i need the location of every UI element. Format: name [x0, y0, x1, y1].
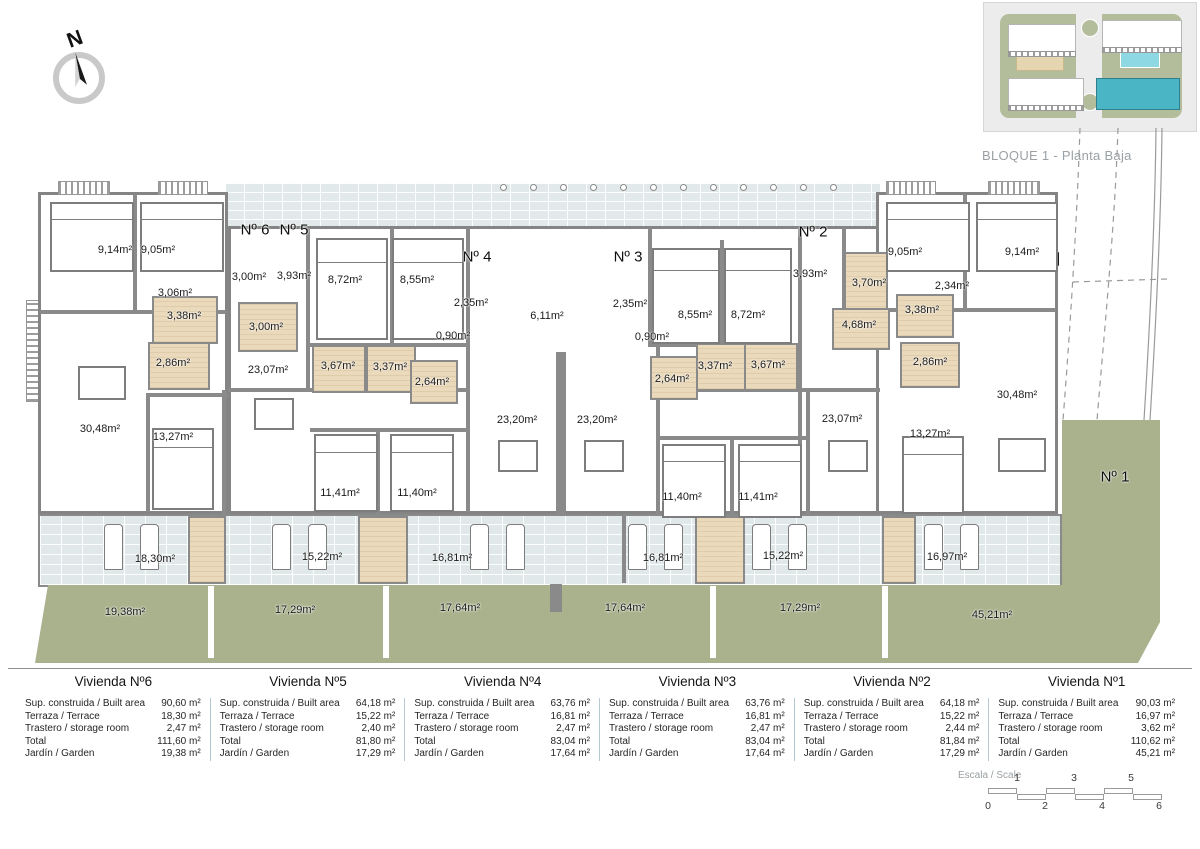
- wall-segment: [306, 228, 310, 390]
- fence-post-icon: [500, 184, 507, 191]
- area-row-label: Terraza / Terrace: [25, 711, 100, 724]
- area-row-value: 110,62 m²: [1131, 736, 1175, 749]
- area-row: Sup. construida / Built area90,03 m²: [998, 698, 1175, 711]
- scale-tick-top: 5: [1128, 772, 1134, 784]
- room-area-label: 17,29m²: [780, 602, 820, 614]
- road-lines: [1055, 128, 1167, 420]
- dining-table-icon: [498, 440, 538, 472]
- vivienda-column: Vivienda Nº6Sup. construida / Built area…: [16, 674, 211, 761]
- room-area-label: 3,00m²: [232, 271, 266, 283]
- lounger-icon: [788, 524, 807, 570]
- wet-room: [882, 516, 916, 584]
- planter-icon: [58, 181, 110, 195]
- dining-table-icon: [998, 438, 1046, 472]
- area-row: Total110,62 m²: [998, 736, 1175, 749]
- sheet-divider-line: [8, 668, 1192, 669]
- area-row: Trastero / storage room3,62 m²: [998, 723, 1175, 736]
- vivienda-column: Vivienda Nº2Sup. construida / Built area…: [795, 674, 990, 761]
- scale-tick-bottom: 4: [1099, 800, 1105, 812]
- area-row: Sup. construida / Built area63,76 m²: [414, 698, 590, 711]
- inset-parking-strip-3: [1102, 47, 1182, 53]
- fence-post-icon: [800, 184, 807, 191]
- area-row: Trastero / storage room2,47 m²: [414, 723, 590, 736]
- room-area-label: 17,64m²: [605, 602, 645, 614]
- room-area-label: 16,81m²: [432, 552, 472, 564]
- room-area-label: 3,37m²: [373, 361, 407, 373]
- vivienda-column: Vivienda Nº4Sup. construida / Built area…: [405, 674, 600, 761]
- room-area-label: 0,90m²: [635, 331, 669, 343]
- room-area-label: 45,21m²: [972, 609, 1012, 621]
- area-row: Jardín / Garden17,64 m²: [414, 748, 590, 761]
- wall-segment: [622, 514, 626, 583]
- area-row-value: 63,76 m²: [745, 698, 784, 711]
- area-row-label: Total: [804, 736, 825, 749]
- area-row-label: Sup. construida / Built area: [414, 698, 534, 711]
- area-row-value: 81,80 m²: [356, 736, 395, 749]
- garden-divider: [383, 586, 389, 658]
- fence-post-icon: [770, 184, 777, 191]
- area-row-label: Trastero / storage room: [609, 723, 713, 736]
- scale-bar-segment: [1046, 788, 1075, 794]
- area-row-value: 2,47 m²: [167, 723, 201, 736]
- garden-divider: [882, 586, 888, 658]
- room-area-label: 30,48m²: [80, 423, 120, 435]
- room-area-label: 13,27m²: [910, 428, 950, 440]
- bed-icon: [314, 434, 378, 512]
- unit-number-label: Nº 2: [799, 224, 828, 241]
- compass-icon: N: [34, 24, 126, 116]
- area-row: Jardín / Garden17,29 m²: [220, 748, 396, 761]
- area-row-value: 17,29 m²: [356, 748, 395, 761]
- area-row-value: 90,60 m²: [161, 698, 200, 711]
- room-area-label: 9,05m²: [888, 246, 922, 258]
- garden-divider: [710, 586, 716, 658]
- room-area-label: 2,86m²: [913, 356, 947, 368]
- fence-post-icon: [680, 184, 687, 191]
- room-area-label: 3,38m²: [167, 310, 201, 322]
- wall-segment: [656, 436, 806, 440]
- vivienda-column-title: Vivienda Nº5: [211, 674, 406, 689]
- lounger-icon: [104, 524, 123, 570]
- room-area-label: 18,30m²: [135, 553, 175, 565]
- area-row-value: 64,18 m²: [356, 698, 395, 711]
- room-area-label: 3,67m²: [751, 359, 785, 371]
- area-row-label: Terraza / Terrace: [220, 711, 295, 724]
- room-area-label: 3,06m²: [158, 287, 192, 299]
- room-area-label: 3,37m²: [698, 360, 732, 372]
- room-area-label: 4,68m²: [842, 319, 876, 331]
- area-row-value: 15,22 m²: [940, 711, 979, 724]
- area-row-value: 111,60 m²: [157, 736, 201, 749]
- dining-table-icon: [254, 398, 294, 430]
- room-area-label: 13,27m²: [153, 431, 193, 443]
- bed-icon: [738, 444, 802, 518]
- room-area-label: 11,40m²: [397, 487, 437, 499]
- area-row: Sup. construida / Built area63,76 m²: [609, 698, 785, 711]
- bed-icon: [140, 202, 224, 272]
- lounger-icon: [506, 524, 525, 570]
- unit-number-label: Nº 6: [241, 222, 270, 239]
- planter-icon: [886, 181, 936, 195]
- room-area-label: 3,00m²: [249, 321, 283, 333]
- vivienda-column-rows: Sup. construida / Built area63,76 m²Terr…: [600, 698, 795, 761]
- room-area-label: 9,14m²: [1005, 246, 1039, 258]
- room-area-label: 11,40m²: [662, 491, 702, 503]
- area-row: Terraza / Terrace18,30 m²: [25, 711, 201, 724]
- area-row: Jardín / Garden45,21 m²: [998, 748, 1175, 761]
- area-row-value: 3,62 m²: [1141, 723, 1175, 736]
- dining-table-icon: [828, 440, 868, 472]
- wall-segment: [730, 438, 734, 514]
- room-area-label: 23,20m²: [577, 414, 617, 426]
- room-area-label: 9,05m²: [141, 244, 175, 256]
- area-row-value: 17,64 m²: [745, 748, 784, 761]
- area-row-label: Total: [998, 736, 1019, 749]
- lounger-icon: [752, 524, 771, 570]
- area-row-value: 83,04 m²: [745, 736, 784, 749]
- area-row-value: 16,81 m²: [551, 711, 590, 724]
- area-row: Total83,04 m²: [609, 736, 785, 749]
- room-area-label: 8,55m²: [400, 274, 434, 286]
- area-row-label: Jardín / Garden: [414, 748, 483, 761]
- room-area-label: 2,35m²: [454, 297, 488, 309]
- unit-number-label: Nº 1: [1101, 469, 1130, 486]
- room-area-label: 2,86m²: [156, 357, 190, 369]
- vivienda-column-title: Vivienda Nº3: [600, 674, 795, 689]
- room-area-label: 15,22m²: [763, 550, 803, 562]
- area-row-value: 2,44 m²: [945, 723, 979, 736]
- fence-post-icon: [830, 184, 837, 191]
- area-row: Total111,60 m²: [25, 736, 201, 749]
- fence-post-icon: [590, 184, 597, 191]
- area-row: Sup. construida / Built area90,60 m²: [25, 698, 201, 711]
- fence-post-icon: [710, 184, 717, 191]
- area-row: Terraza / Terrace16,81 m²: [609, 711, 785, 724]
- wet-room: [358, 516, 408, 584]
- area-row-label: Terraza / Terrace: [609, 711, 684, 724]
- floorplan-sheet: { "header": { "title": "BLOQUE 1 - Plant…: [0, 0, 1200, 849]
- room-area-label: 8,55m²: [678, 309, 712, 321]
- room-area-label: 3,93m²: [277, 270, 311, 282]
- room-area-label: 23,07m²: [248, 364, 288, 376]
- area-row-value: 90,03 m²: [1136, 698, 1175, 711]
- area-row-label: Jardín / Garden: [998, 748, 1067, 761]
- room-area-label: 9,14m²: [98, 244, 132, 256]
- room-area-label: 16,97m²: [927, 551, 967, 563]
- room-area-label: 19,38m²: [105, 606, 145, 618]
- bed-icon: [652, 248, 720, 344]
- area-row-label: Terraza / Terrace: [998, 711, 1073, 724]
- area-row-value: 64,18 m²: [940, 698, 979, 711]
- vivienda-column-title: Vivienda Nº2: [795, 674, 990, 689]
- area-row-value: 19,38 m²: [161, 748, 200, 761]
- wall-segment: [466, 228, 470, 512]
- area-row: Trastero / storage room2,47 m²: [25, 723, 201, 736]
- area-row-label: Sup. construida / Built area: [220, 698, 340, 711]
- area-row: Trastero / storage room2,44 m²: [804, 723, 980, 736]
- planter-icon: [988, 181, 1040, 195]
- fence-post-icon: [530, 184, 537, 191]
- lounger-icon: [924, 524, 943, 570]
- inset-amenity-building: [1016, 56, 1064, 71]
- area-row-value: 2,47 m²: [556, 723, 590, 736]
- scale-tick-bottom: 6: [1156, 800, 1162, 812]
- room-area-label: 11,41m²: [320, 487, 360, 499]
- area-row: Jardín / Garden17,29 m²: [804, 748, 980, 761]
- fence-post-icon: [740, 184, 747, 191]
- wet-room: [695, 516, 745, 584]
- area-row-label: Jardín / Garden: [220, 748, 289, 761]
- area-row-value: 63,76 m²: [551, 698, 590, 711]
- vivienda-column-title: Vivienda Nº1: [989, 674, 1184, 689]
- area-row: Total81,84 m²: [804, 736, 980, 749]
- bed-icon: [390, 434, 454, 512]
- bed-icon: [902, 436, 964, 514]
- area-row-label: Total: [414, 736, 435, 749]
- bed-icon: [976, 202, 1058, 272]
- garden-divider: [208, 586, 214, 658]
- wet-room: [896, 294, 954, 338]
- room-area-label: 3,93m²: [793, 268, 827, 280]
- scale-bar-segment: [988, 788, 1017, 794]
- area-row: Sup. construida / Built area64,18 m²: [804, 698, 980, 711]
- room-area-label: 2,34m²: [935, 280, 969, 292]
- area-row-value: 18,30 m²: [161, 711, 200, 724]
- unit-number-label: Nº 3: [614, 249, 643, 266]
- unit-number-label: Nº 5: [280, 222, 309, 239]
- room-area-label: 30,48m²: [997, 389, 1037, 401]
- areas-table: Vivienda Nº6Sup. construida / Built area…: [16, 674, 1184, 761]
- room-area-label: 3,38m²: [905, 304, 939, 316]
- area-row-value: 45,21 m²: [1136, 748, 1175, 761]
- room-area-label: 6,11m²: [530, 310, 563, 322]
- area-row-label: Jardín / Garden: [609, 748, 678, 761]
- fence-post-icon: [650, 184, 657, 191]
- inset-building-bloque1: [1096, 78, 1180, 110]
- area-row: Sup. construida / Built area64,18 m²: [220, 698, 396, 711]
- room-area-label: 17,29m²: [275, 604, 315, 616]
- planter-icon: [158, 181, 208, 195]
- area-row: Jardín / Garden19,38 m²: [25, 748, 201, 761]
- scale-tick-bottom: 0: [985, 800, 991, 812]
- area-row-label: Terraza / Terrace: [414, 711, 489, 724]
- bed-icon: [886, 202, 970, 272]
- room-area-label: 8,72m²: [328, 274, 362, 286]
- room-area-label: 3,70m²: [852, 277, 886, 289]
- lounger-icon: [308, 524, 327, 570]
- area-row-label: Sup. construida / Built area: [25, 698, 145, 711]
- area-row-value: 2,47 m²: [751, 723, 785, 736]
- vivienda-column-rows: Sup. construida / Built area90,60 m²Terr…: [16, 698, 211, 761]
- room-area-label: 15,22m²: [302, 551, 342, 563]
- vivienda-column: Vivienda Nº1Sup. construida / Built area…: [989, 674, 1184, 761]
- wall-segment: [806, 390, 810, 514]
- bed-icon: [392, 238, 464, 340]
- area-row-label: Total: [609, 736, 630, 749]
- area-row-label: Total: [220, 736, 241, 749]
- dining-table-icon: [78, 366, 126, 400]
- area-row: Total83,04 m²: [414, 736, 590, 749]
- vivienda-column-rows: Sup. construida / Built area64,18 m²Terr…: [795, 698, 990, 761]
- area-row-label: Trastero / storage room: [220, 723, 324, 736]
- vivienda-column: Vivienda Nº5Sup. construida / Built area…: [211, 674, 406, 761]
- room-area-label: 0,90m²: [436, 330, 470, 342]
- inset-building-sw: [1008, 78, 1084, 106]
- area-row-value: 83,04 m²: [551, 736, 590, 749]
- area-row: Terraza / Terrace15,22 m²: [220, 711, 396, 724]
- area-row-value: 17,29 m²: [940, 748, 979, 761]
- area-row-label: Sup. construida / Built area: [609, 698, 729, 711]
- area-row-label: Total: [25, 736, 46, 749]
- area-row-value: 81,84 m²: [940, 736, 979, 749]
- room-area-label: 2,64m²: [415, 376, 449, 388]
- room-area-label: 23,07m²: [822, 413, 862, 425]
- vivienda-column-title: Vivienda Nº4: [405, 674, 600, 689]
- area-row: Terraza / Terrace15,22 m²: [804, 711, 980, 724]
- wall-segment: [222, 390, 226, 514]
- area-row: Trastero / storage room2,40 m²: [220, 723, 396, 736]
- area-row-label: Trastero / storage room: [998, 723, 1102, 736]
- compass-n-letter: N: [64, 26, 86, 53]
- wet-room: [188, 516, 226, 584]
- dining-table-icon: [584, 440, 624, 472]
- inset-building-ne: [1102, 20, 1182, 48]
- fence-post-icon: [620, 184, 627, 191]
- area-row-label: Trastero / storage room: [25, 723, 129, 736]
- room-area-label: 2,35m²: [613, 298, 647, 310]
- area-row-value: 15,22 m²: [356, 711, 395, 724]
- room-area-label: 17,64m²: [440, 602, 480, 614]
- scale-bar-segment: [1104, 788, 1133, 794]
- wall-segment: [556, 352, 566, 514]
- room-area-label: 2,64m²: [655, 373, 689, 385]
- lounger-icon: [960, 524, 979, 570]
- area-row-label: Jardín / Garden: [25, 748, 94, 761]
- area-row-label: Sup. construida / Built area: [998, 698, 1118, 711]
- bed-icon: [724, 248, 792, 344]
- area-row-value: 16,97 m²: [1136, 711, 1175, 724]
- vivienda-column: Vivienda Nº3Sup. construida / Built area…: [600, 674, 795, 761]
- inset-parking-strip-2: [1008, 105, 1084, 111]
- lounger-icon: [272, 524, 291, 570]
- area-row: Jardín / Garden17,64 m²: [609, 748, 785, 761]
- area-row-label: Jardín / Garden: [804, 748, 873, 761]
- area-row-value: 2,40 m²: [361, 723, 395, 736]
- room-area-label: 23,20m²: [497, 414, 537, 426]
- scale-tick-top: 1: [1014, 772, 1020, 784]
- fence-post-icon: [560, 184, 567, 191]
- wall-segment: [146, 393, 228, 397]
- wall-segment: [146, 393, 150, 512]
- area-row: Total81,80 m²: [220, 736, 396, 749]
- area-row-value: 17,64 m²: [551, 748, 590, 761]
- scale-caption: Escala / Scale: [958, 770, 1021, 781]
- room-area-label: 16,81m²: [643, 552, 683, 564]
- inset-parking-strip-1: [1008, 51, 1076, 57]
- inset-roundabout-top: [1081, 19, 1099, 37]
- inset-pool: [1120, 52, 1160, 68]
- area-row: Terraza / Terrace16,81 m²: [414, 711, 590, 724]
- room-area-label: 11,41m²: [738, 491, 778, 503]
- area-row-label: Trastero / storage room: [414, 723, 518, 736]
- area-row-label: Trastero / storage room: [804, 723, 908, 736]
- scale-tick-bottom: 2: [1042, 800, 1048, 812]
- rear-terrace-hatch-1: [225, 183, 880, 229]
- unit-number-label: Nº 4: [463, 249, 492, 266]
- area-row: Trastero / storage room2,47 m²: [609, 723, 785, 736]
- area-row-value: 16,81 m²: [745, 711, 784, 724]
- lounger-icon: [470, 524, 489, 570]
- bed-icon: [50, 202, 134, 272]
- vivienda-column-rows: Sup. construida / Built area63,76 m²Terr…: [405, 698, 600, 761]
- area-row: Terraza / Terrace16,97 m²: [998, 711, 1175, 724]
- bed-icon: [662, 444, 726, 518]
- area-row-label: Terraza / Terrace: [804, 711, 879, 724]
- vivienda-column-title: Vivienda Nº6: [16, 674, 211, 689]
- bed-icon: [316, 238, 388, 340]
- vivienda-column-rows: Sup. construida / Built area64,18 m²Terr…: [211, 698, 406, 761]
- wall-segment: [310, 428, 468, 432]
- inset-building-nw: [1008, 24, 1076, 52]
- room-area-label: 3,67m²: [321, 360, 355, 372]
- scale-tick-top: 3: [1071, 772, 1077, 784]
- garden-wall-stub: [550, 584, 562, 612]
- area-row-label: Sup. construida / Built area: [804, 698, 924, 711]
- vivienda-column-rows: Sup. construida / Built area90,03 m²Terr…: [989, 698, 1184, 761]
- room-area-label: 8,72m²: [731, 309, 765, 321]
